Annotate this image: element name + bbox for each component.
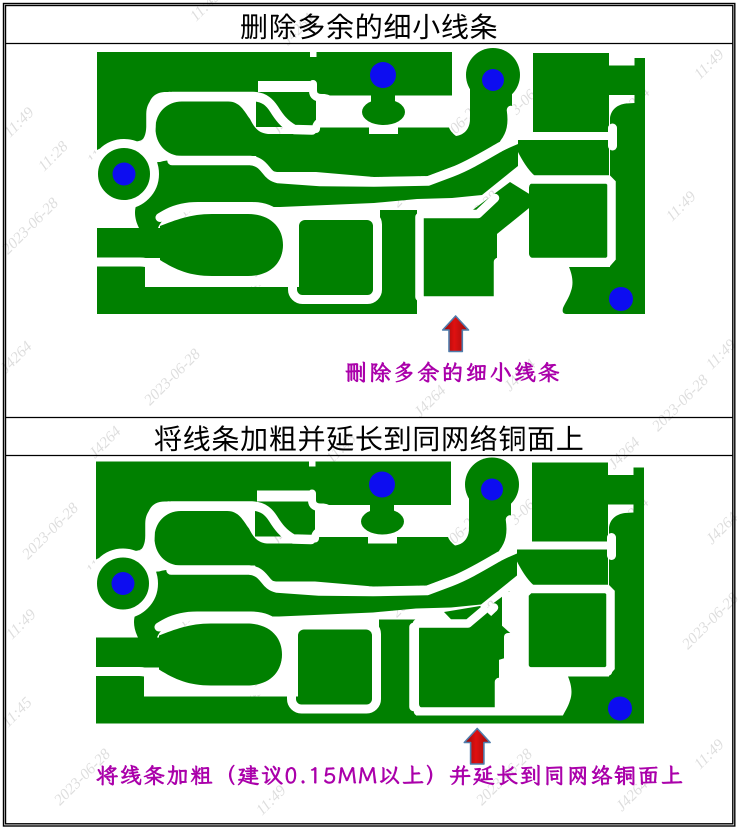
svg-text:J4264: J4264 [605, 434, 644, 473]
svg-text:2023-06-28: 2023-06-28 [0, 194, 62, 257]
svg-text:J4264: J4264 [411, 382, 450, 421]
svg-text:11:49: 11:49 [253, 782, 290, 819]
svg-text:11:49: 11:49 [1, 104, 38, 141]
svg-text:11:49: 11:49 [691, 46, 728, 83]
svg-text:11:49: 11:49 [691, 736, 728, 773]
svg-text:2023-06-28: 2023-06-28 [19, 499, 82, 562]
svg-text:2023-06-28: 2023-06-28 [649, 371, 712, 434]
svg-text:J4264: J4264 [501, 356, 540, 395]
svg-text:2023-06-28: 2023-06-28 [679, 589, 738, 652]
svg-text:11:28: 11:28 [35, 138, 72, 175]
svg-text:11:49: 11:49 [3, 606, 40, 643]
svg-text:2023-06-28: 2023-06-28 [141, 345, 204, 408]
svg-text:11:49: 11:49 [663, 188, 700, 225]
